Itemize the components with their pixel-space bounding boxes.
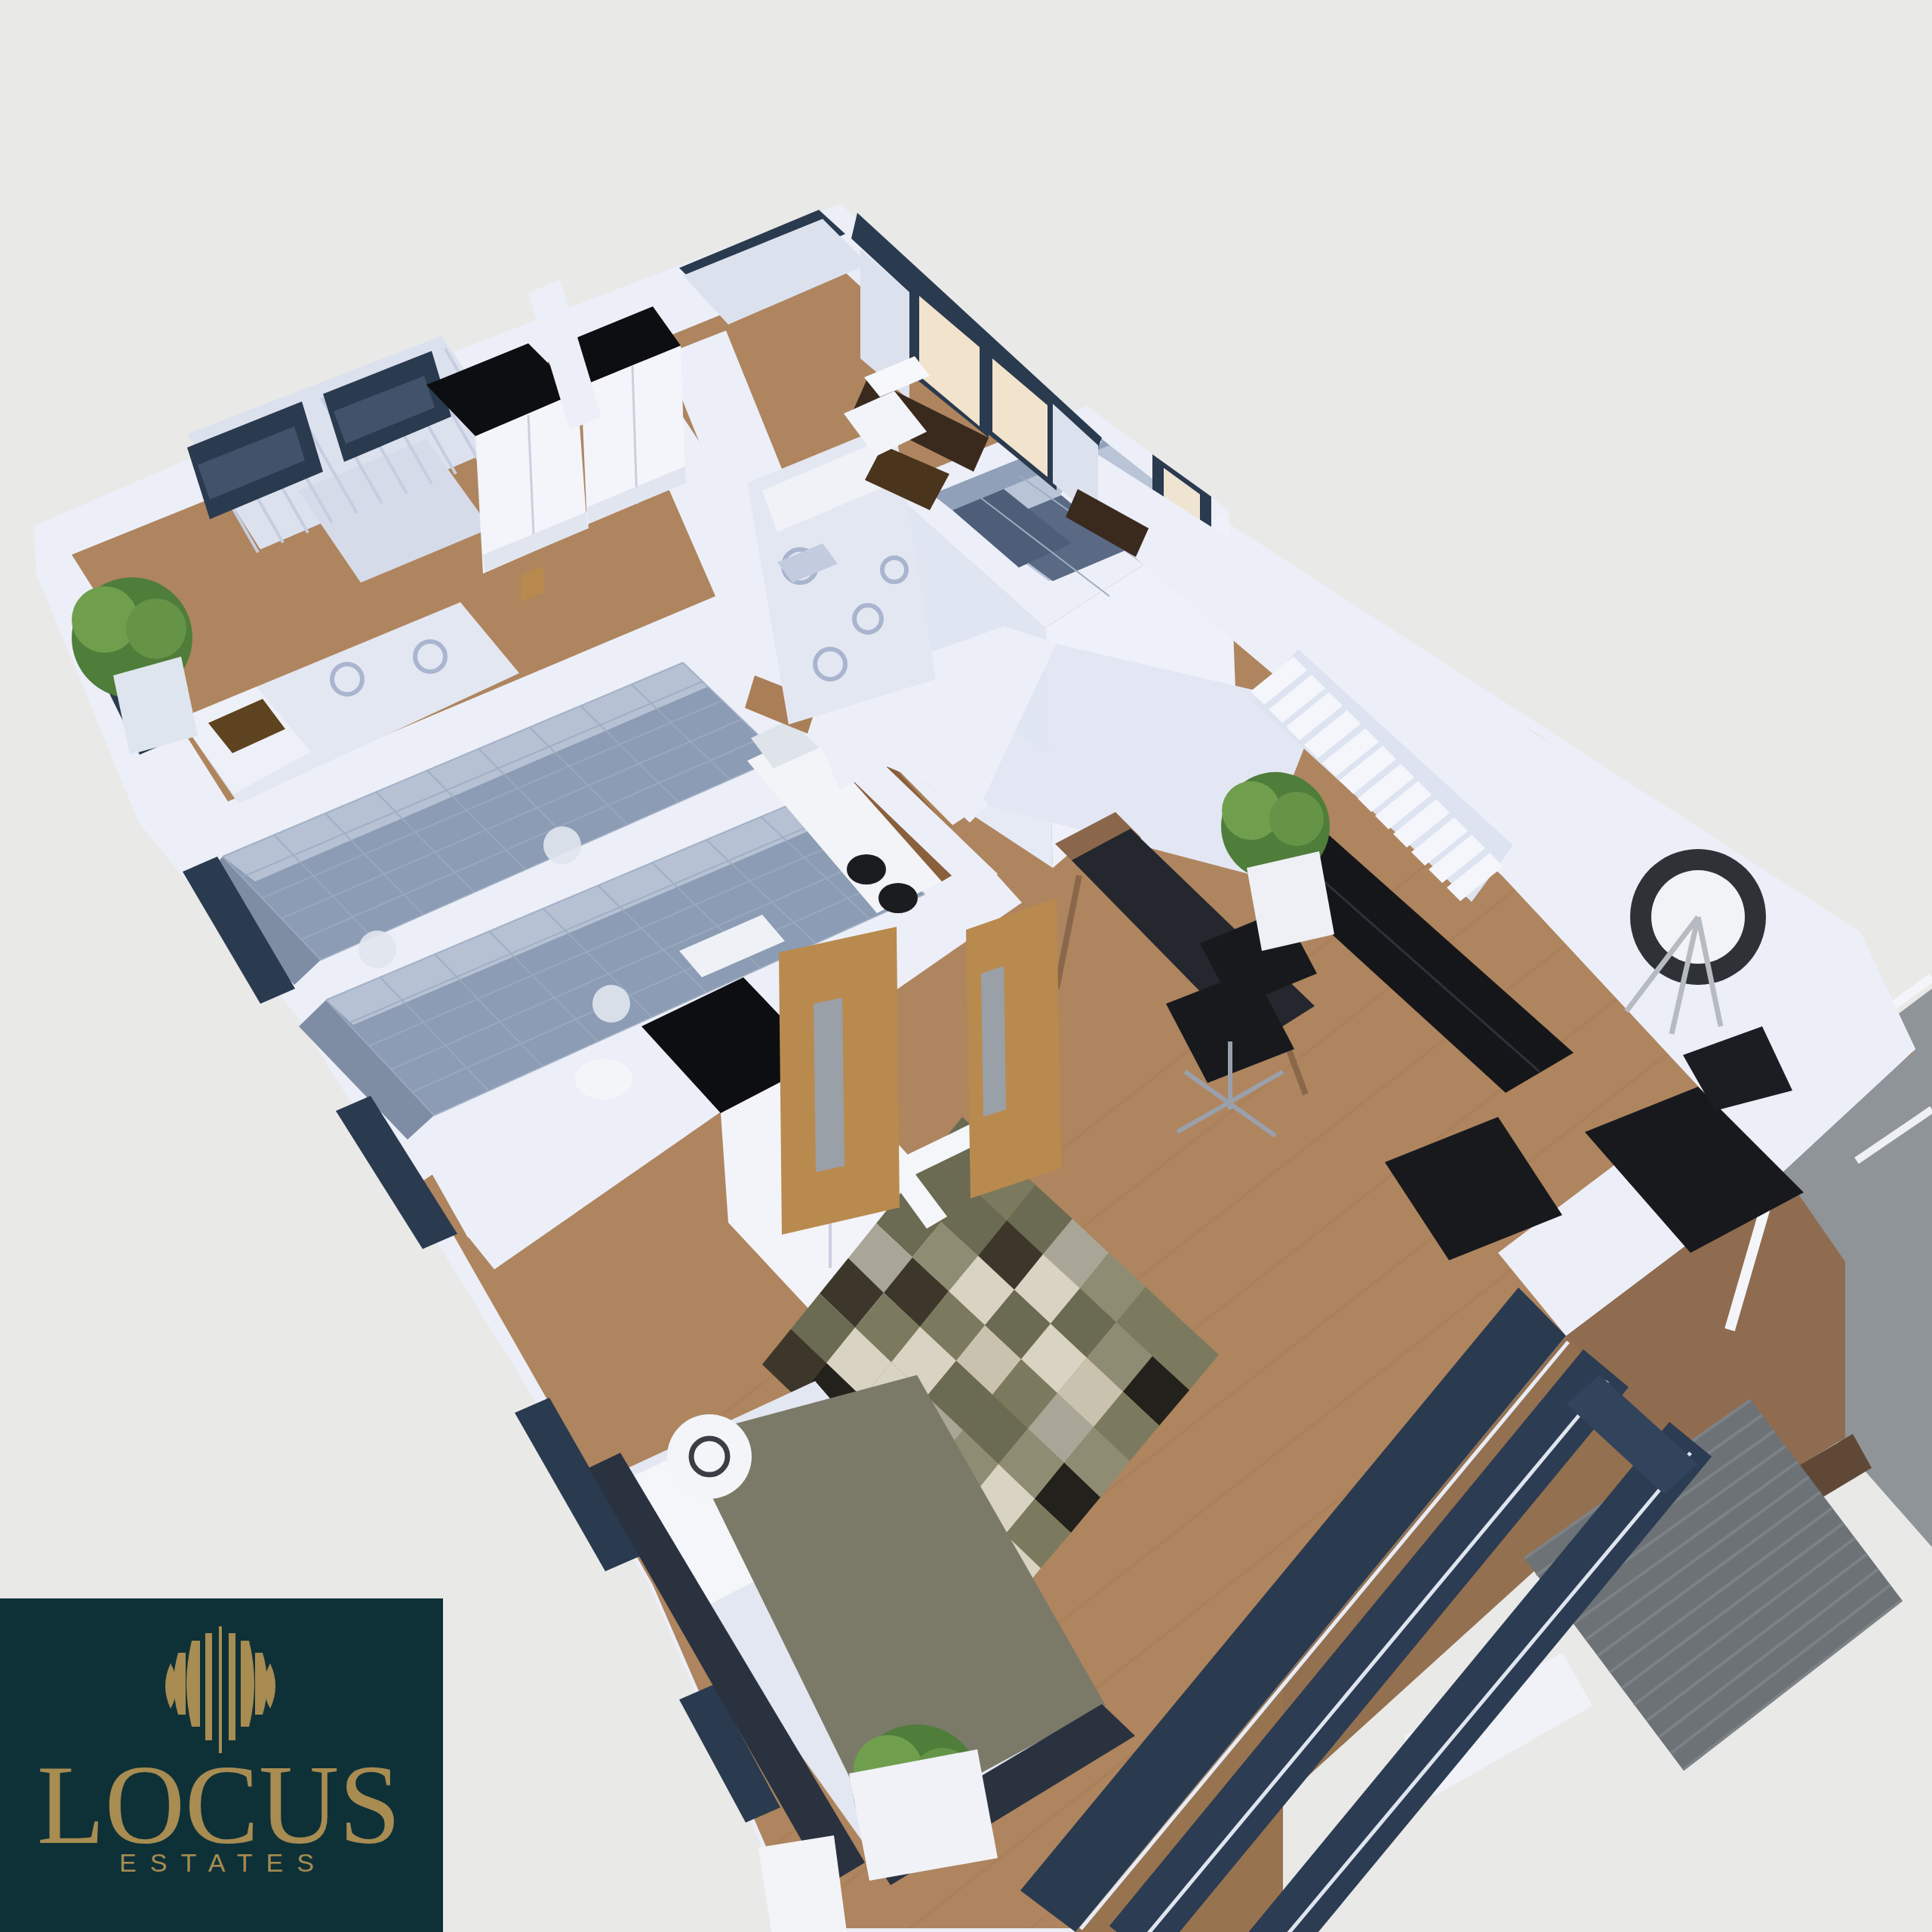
svg-text:ESTATES: ESTATES: [119, 1848, 328, 1877]
